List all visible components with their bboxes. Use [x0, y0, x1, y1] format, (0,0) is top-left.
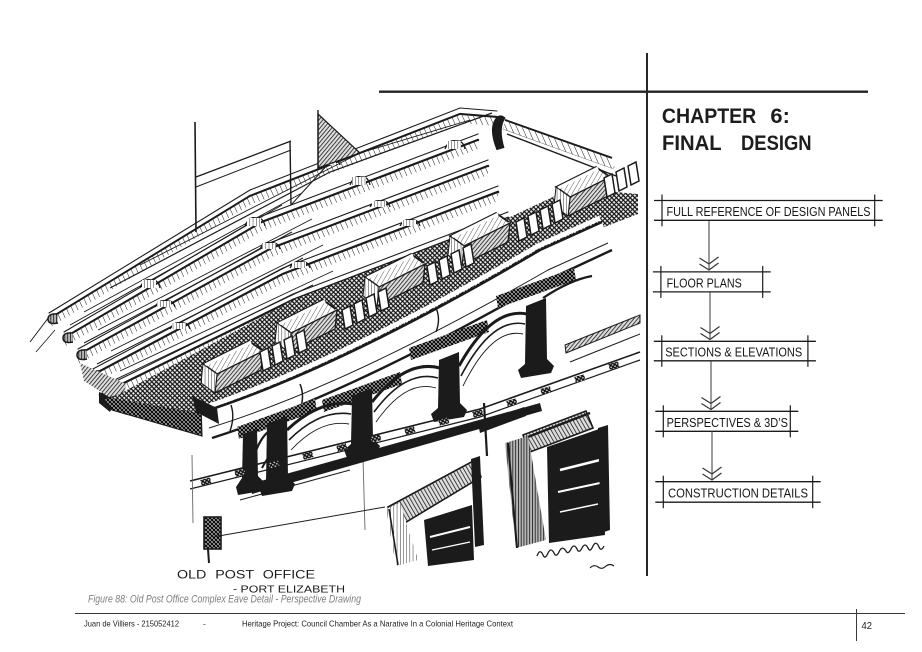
svg-text:CHAPTER: CHAPTER: [662, 105, 756, 128]
svg-text:Juan de Villiers - 215052412: Juan de Villiers - 215052412: [84, 619, 179, 629]
svg-text:Heritage Project: Council Cham: Heritage Project: Council Chamber As a N…: [242, 619, 514, 629]
svg-text:42: 42: [862, 621, 873, 632]
svg-text:Figure 88: Old Post Office Com: Figure 88: Old Post Office Complex Eave …: [88, 594, 362, 606]
svg-text:DESIGN: DESIGN: [741, 132, 812, 155]
svg-text:FINAL: FINAL: [662, 132, 722, 155]
svg-text:6:: 6:: [770, 105, 790, 128]
svg-text:-: -: [203, 619, 206, 629]
